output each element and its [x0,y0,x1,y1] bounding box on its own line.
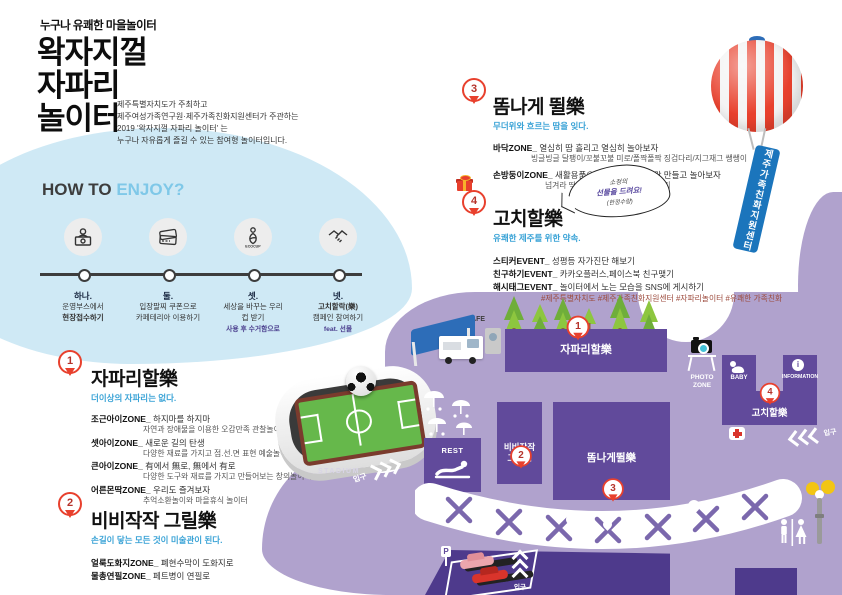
map-pin4-number: 4 [767,387,772,397]
step4-num: 넷. [290,291,386,302]
section1-number: 1 [67,355,73,367]
timeline-dot [248,269,261,282]
parasol-cluster [420,386,482,440]
tickets-icon [156,225,180,249]
poster-description: 제주특별자치도가 주최하고 제주여성가족연구원·제주가족친화지원센터가 주관하는… [117,99,332,147]
section2-pin: 2 [58,492,82,516]
reception-desk-icon [71,225,95,249]
step4-label: 넷. 고치할락(樂) 캠페인 참여하기 feat. 선물 [290,291,386,334]
map-pin-1: 1 [567,316,590,339]
photo-zone-label1: PHOTO [684,374,720,382]
step2-line1: 입장팔찌 쿠폰으로 [139,302,196,311]
how-to-enjoy-heading: HOW TO ENJOY? [42,180,184,200]
zone-name: 스티커EVENT_ [493,256,550,266]
map-zone-gochi: BABY i INFORMATION 4 고치할樂 [722,355,817,425]
step3-note: 사용 후 수거함으로 [205,325,301,334]
description-line: 2019 '왁자지껄 자파리 놀이터' 는 [117,123,332,135]
zone-head: 有에서 無로, 無에서 有로 [145,461,235,471]
step3-line2: 컵 받기 [242,313,265,322]
step3-num: 셋. [205,291,301,302]
poster-page: 누구나 유쾌한 마을놀이터 왁자지껄 자파리 놀이터 제주특별자치도가 주최하고… [0,0,842,595]
camera-icon [691,340,712,353]
how-to-accent: ENJOY? [116,180,184,199]
how-to-dark: HOW TO [42,180,112,199]
bubble-line3: (한정수량) [606,196,633,207]
title-line-1: 왁자지껄 [37,36,147,69]
cafe-truck-body [439,336,483,359]
zone-name: 큰아이ZONE_ [91,461,143,471]
list-item: 얼룩도화지ZONE_ 폐현수막이 도화지로 [91,558,398,568]
section4-pin: 4 [462,190,486,214]
vending-box [485,328,501,354]
step1-circle [64,218,102,256]
zone-name: 손방둥이ZONE_ [493,170,553,180]
zone-head: 페트병이 연필로 [153,571,210,581]
umbrella-icon [424,391,472,436]
list-item: 친구하기EVENT_ 카카오플러스,페이스북 친구맺기 [493,269,802,279]
zone-name: 얼룩도화지ZONE_ [91,558,158,568]
first-aid-icon [729,427,745,440]
entrance-label: 입구 [514,584,526,592]
step2-num: 둘. [120,291,216,302]
info-i-glyph: i [797,360,799,369]
map-zone-japari: 자파리할樂 [505,329,667,372]
crossing-band [415,450,810,590]
step1-label: 하나. 운영부스에서 현장접수하기 [35,291,131,323]
information-icon: i [792,359,804,371]
poster-tagline: 누구나 유쾌한 마을놀이터 [40,17,156,33]
step3-circle: ECOCUP [234,218,272,256]
step2-circle [149,218,187,256]
step1-line1: 운영부스에서 [62,302,103,311]
section-grill: 2 비비작작 그릴樂 손길이 닿는 모든 것이 미술관이 된다. 얼룩도화지ZO… [58,488,398,584]
zone-name: 셋아이ZONE_ [91,438,143,448]
map-pin-4: 4 [760,383,780,403]
zone-name: 바닥ZONE_ [493,143,537,153]
timeline-dot [78,269,91,282]
map-zone1-label: 자파리할樂 [505,329,667,372]
step1-num: 하나. [35,291,131,302]
zone-head: 카카오플러스,페이스북 친구맺기 [560,269,674,279]
ecocup-label: ECOCUP [245,245,261,249]
step4-line1: 고치할락(樂) [318,302,358,311]
title-line-2: 자파리 [37,69,147,102]
step4-circle [319,218,357,256]
information-label: INFORMATION [780,374,820,380]
description-line: 제주특별자치도가 주최하고 [117,99,332,111]
zone-head: 폐현수막이 도화지로 [161,558,234,568]
map-pin1-number: 1 [575,320,581,331]
photo-zone: PHOTO ZONE [684,338,720,393]
section1-pin: 1 [58,350,82,374]
timeline-dot [333,269,346,282]
list-item: 물총연필ZONE_ 페트병이 연필로 [91,571,398,581]
entrance-label: 입구 [352,471,368,484]
baby-icon [728,360,748,374]
handshake-icon [326,225,350,249]
soccer-ball-icon [346,366,376,396]
hot-air-balloon-icon [711,40,803,132]
step3-line1: 세상을 바꾸는 우리 [223,302,282,311]
entrance-label: 입구 [823,429,837,439]
zone-name: 물총연필ZONE_ [91,571,151,581]
section3-number: 3 [471,83,477,95]
list-item: 스티커EVENT_ 성평등 자가진단 해보기 [493,256,802,266]
timeline-dot [163,269,176,282]
section4-number: 4 [471,195,477,207]
step4-line2: 캠페인 참여하기 [313,313,363,322]
zone-name: 친구하기EVENT_ [493,269,557,279]
ecocup-icon: ECOCUP [241,225,265,249]
zone-head: 열심히 땀 흘리고 열심히 놀아보자 [539,143,658,153]
description-line: 누구나 자유롭게 즐길 수 있는 참여형 놀이터입니다. [117,135,332,147]
section2-number: 2 [67,497,73,509]
bottom-entrance: 입구 [514,552,526,592]
step2-line2: 카페테리아 이용하기 [136,313,200,322]
zone-head: 새로운 길의 탄생 [145,438,204,448]
step1-line2: 현장접수하기 [62,313,103,322]
description-line: 제주여성가족연구원·제주가족친화지원센터가 주관하는 [117,111,332,123]
step4-note: feat. 선물 [290,325,386,334]
photo-zone-label2: ZONE [684,382,720,390]
step2-label: 둘. 입장팔찌 쿠폰으로 카페테리아 이용하기 [120,291,216,323]
zone-name: 조근아이ZONE_ [91,414,151,424]
baby-label: BABY [724,375,754,382]
section3-pin: 3 [462,78,486,102]
section2-title: 비비작작 그릴樂 [91,512,398,531]
cafe-area: CAFE [409,296,504,371]
zone-head: 성평등 자가진단 해보기 [552,256,635,266]
zone-head: 하지마를 하지마 [153,414,210,424]
section2-subtitle: 손길이 닿는 모든 것이 미술관이 된다. [91,534,398,546]
lamp-pole [817,498,822,544]
step3-label: 셋. 세상을 바꾸는 우리 컵 받기 사용 후 수거함으로 [205,291,301,334]
